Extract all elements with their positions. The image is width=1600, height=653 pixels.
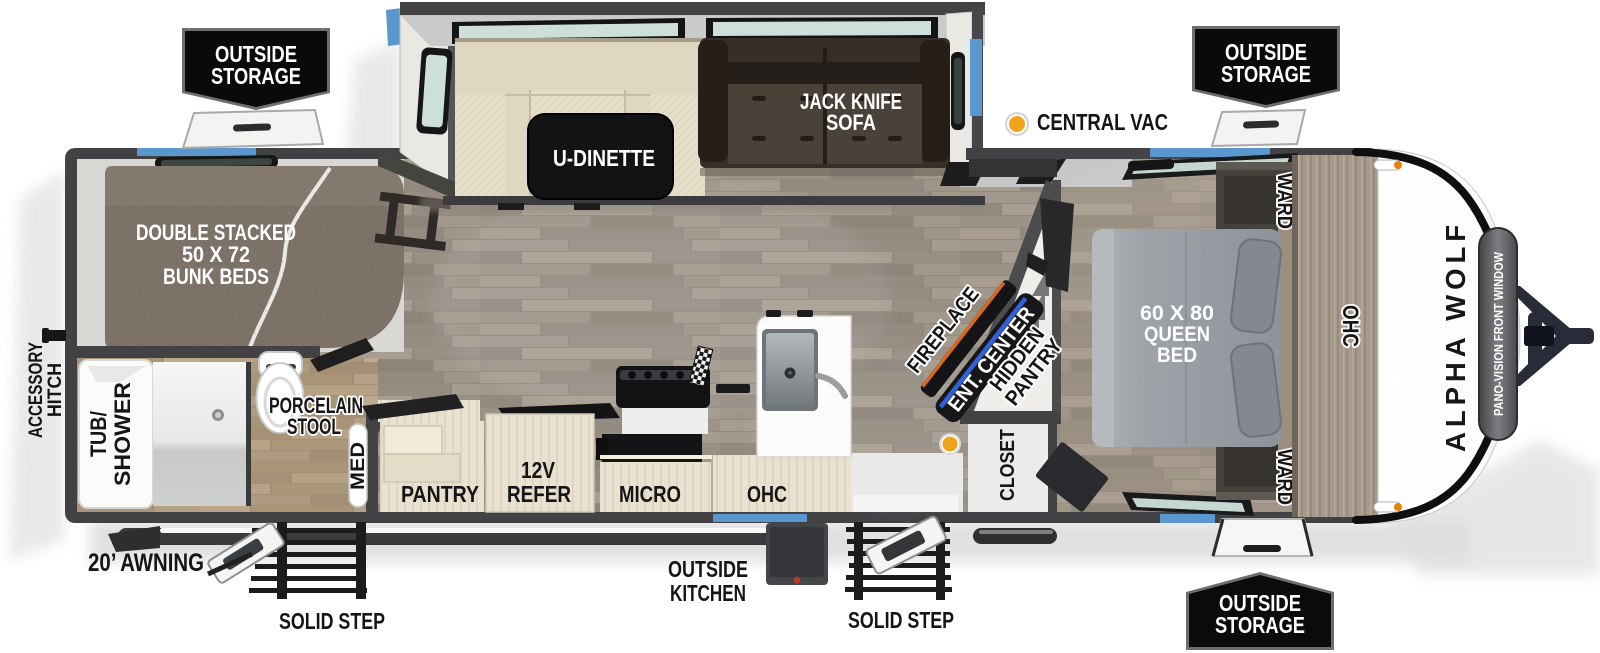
svg-text:SHOWER: SHOWER: [110, 382, 135, 486]
svg-text:PANO-VISION FRONT WINDOW: PANO-VISION FRONT WINDOW: [1492, 252, 1506, 416]
svg-text:20’ AWNING: 20’ AWNING: [88, 549, 204, 577]
svg-text:QUEEN: QUEEN: [1144, 323, 1210, 346]
svg-text:MED: MED: [348, 442, 369, 490]
svg-text:REFER: REFER: [507, 481, 571, 507]
svg-text:BUNK BEDS: BUNK BEDS: [163, 264, 269, 289]
svg-text:12V: 12V: [521, 457, 556, 483]
svg-text:ALPHA WOLF: ALPHA WOLF: [1440, 220, 1471, 452]
svg-text:OHC: OHC: [1338, 305, 1363, 347]
svg-text:CLOSET: CLOSET: [997, 429, 1019, 501]
svg-text:MICRO: MICRO: [619, 481, 681, 507]
svg-text:SOLID STEP: SOLID STEP: [279, 608, 385, 634]
svg-text:STOOL: STOOL: [287, 414, 341, 439]
svg-text:STORAGE: STORAGE: [211, 63, 301, 89]
svg-text:BED: BED: [1157, 344, 1197, 367]
svg-text:TUB/: TUB/: [86, 411, 111, 457]
svg-text:OHC: OHC: [747, 481, 787, 507]
svg-text:SOLID STEP: SOLID STEP: [848, 607, 954, 633]
svg-text:STORAGE: STORAGE: [1221, 61, 1311, 87]
svg-text:HITCH: HITCH: [45, 363, 66, 417]
svg-text:60 X 80: 60 X 80: [1140, 302, 1214, 325]
svg-text:CENTRAL VAC: CENTRAL VAC: [1037, 109, 1168, 135]
svg-text:OUTSIDE: OUTSIDE: [668, 556, 748, 582]
svg-text:STORAGE: STORAGE: [1215, 612, 1305, 638]
svg-text:KITCHEN: KITCHEN: [670, 580, 746, 606]
svg-text:ACCESSORY: ACCESSORY: [26, 342, 47, 438]
svg-text:U-DINETTE: U-DINETTE: [553, 145, 655, 171]
svg-text:PANTRY: PANTRY: [401, 481, 479, 507]
svg-text:SOFA: SOFA: [826, 110, 876, 135]
